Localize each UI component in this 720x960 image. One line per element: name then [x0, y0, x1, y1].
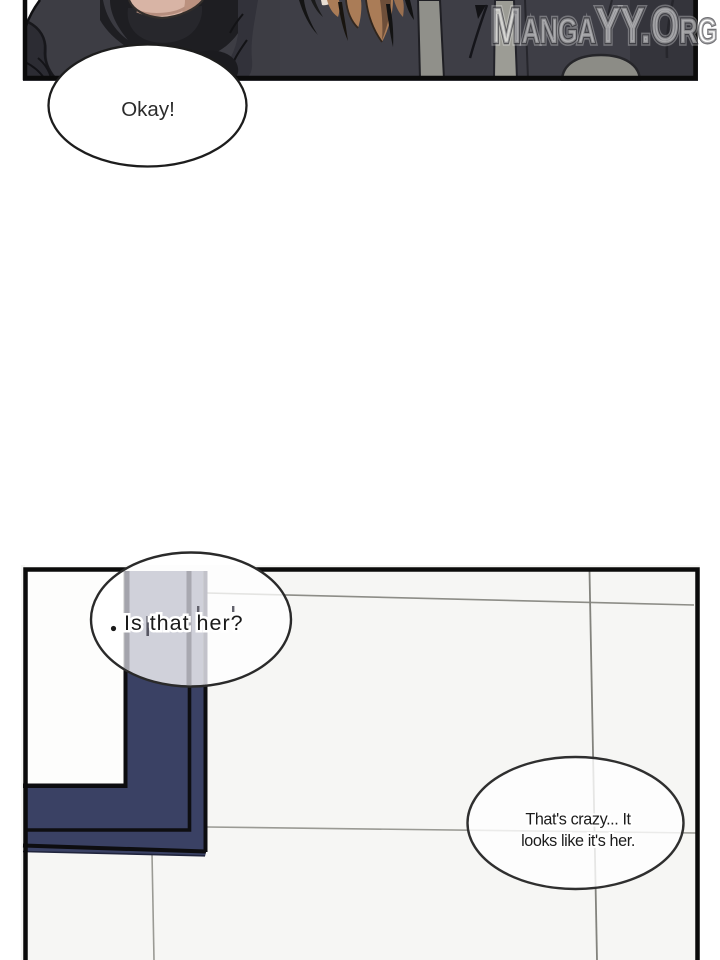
svg-text:That's crazy... It: That's crazy... It — [525, 811, 631, 829]
svg-text:looks like it's her.: looks like it's her. — [521, 832, 635, 850]
svg-text:Okay!: Okay! — [121, 98, 175, 121]
svg-text:Is that her?: Is that her? — [124, 611, 244, 635]
